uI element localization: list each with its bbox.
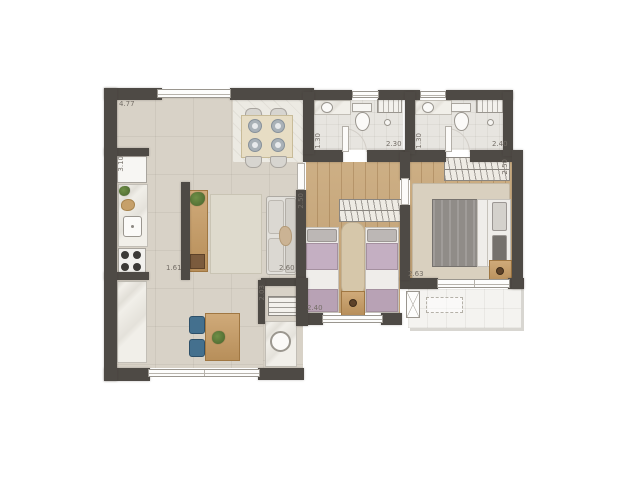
dim-kitchen-height: 3.10 — [118, 156, 125, 172]
dining-chair — [245, 156, 262, 168]
sofa-throw — [279, 226, 292, 246]
bath2-window — [420, 91, 446, 98]
bedroom1-wardrobe — [339, 199, 402, 222]
living-rug — [210, 194, 262, 274]
balcony-glass-rail — [410, 328, 524, 331]
bath1-drain-icon — [384, 119, 391, 126]
nightstand-lamp-icon — [349, 299, 357, 307]
wall-segment — [381, 313, 402, 325]
dim-top-width: 4.77 — [119, 101, 135, 108]
office-cabinet — [117, 281, 147, 363]
laundry-fixed-glass — [406, 291, 420, 318]
floor-balcony — [408, 289, 521, 328]
plate-icon — [275, 142, 281, 148]
stove-burner-icon — [121, 263, 129, 271]
bath1-shower — [377, 99, 402, 113]
bath2-shower — [476, 99, 504, 113]
wall-segment — [296, 278, 308, 326]
dim-bath1-height: 1.30 — [315, 133, 322, 149]
bed-pillow — [307, 229, 337, 242]
wall-segment — [303, 92, 314, 154]
bed-pillow — [492, 202, 507, 231]
plate-icon — [252, 123, 258, 129]
bed-blanket — [306, 243, 338, 270]
kitchen-window — [157, 89, 231, 98]
sideboard-decor — [190, 254, 205, 269]
balcony-future-furniture — [426, 297, 463, 313]
plate-icon — [252, 142, 258, 148]
plate-icon — [275, 123, 281, 129]
wall-segment — [104, 88, 117, 381]
dim-kitchen-passage: 1.61 — [166, 265, 182, 272]
bedroom1-door — [297, 163, 305, 190]
office-chair — [189, 316, 205, 334]
dim-bath2-width: 2.40 — [492, 141, 508, 148]
kitchen-food-decor — [121, 199, 135, 211]
floor-plan: 4.77 3.10 1.30 2.30 1.30 2.40 2.50 2.50 … — [0, 0, 624, 480]
bed-blanket — [366, 243, 398, 270]
stove-burner-icon — [133, 263, 141, 271]
dim-living-width: 2.60 — [279, 265, 295, 272]
dim-bath2-height: 1.30 — [416, 133, 423, 149]
bed-footer — [366, 289, 398, 312]
wall-segment — [400, 205, 410, 280]
wall-segment — [181, 182, 190, 280]
dining-chair — [270, 156, 287, 168]
bath2-drain-icon — [487, 119, 494, 126]
office-chair — [189, 339, 205, 357]
wall-segment — [512, 150, 523, 289]
stove-burner-icon — [133, 251, 141, 259]
bath2-toilet-tank — [451, 103, 471, 112]
bed-sheet-fold — [477, 199, 488, 267]
dim-bedroom1-width: 2.40 — [307, 305, 323, 312]
living-window — [148, 369, 260, 377]
bedroom1-runner-rug — [341, 222, 365, 296]
nightstand-lamp-icon — [496, 267, 504, 275]
wall-segment — [405, 92, 415, 154]
balcony-glass-rail — [521, 289, 524, 330]
bath1-window — [352, 91, 379, 98]
bath2-door — [445, 126, 452, 152]
bath2-sink — [422, 102, 434, 113]
bed-pillow — [367, 229, 397, 242]
wall-segment — [400, 152, 410, 180]
kitchen-sink-drain-icon — [131, 225, 134, 228]
wall-segment — [230, 88, 314, 100]
dim-master-wardrobe: 2.50 — [502, 159, 509, 175]
bath1-sink — [321, 102, 333, 113]
laundry-tub — [270, 331, 291, 352]
master-door — [401, 178, 409, 205]
stove-burner-icon — [121, 251, 129, 259]
laundry-shelf — [268, 296, 297, 316]
dim-bedroom1-height: 2.50 — [298, 193, 305, 209]
dim-bath1-width: 2.30 — [386, 141, 402, 148]
bedroom1-window — [322, 315, 383, 323]
bed-blanket — [432, 199, 478, 267]
bath1-door — [342, 126, 349, 152]
wall-segment — [258, 368, 304, 380]
balcony-sliding-door — [437, 279, 510, 288]
wall-segment — [312, 90, 352, 100]
dim-laundry-height: 2.03 — [259, 285, 266, 301]
dim-master-width: 2.63 — [408, 271, 424, 278]
bath1-toilet-tank — [352, 103, 372, 112]
